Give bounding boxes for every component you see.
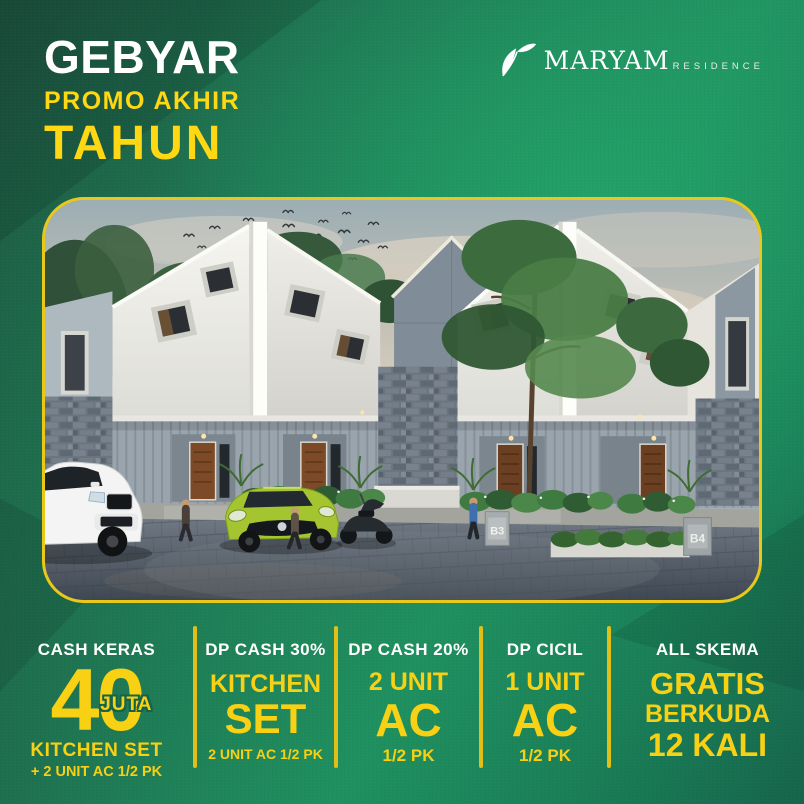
offer-bonus-line: BERKUDA xyxy=(645,701,770,729)
offer-dp-cash-20: DP CASH 20% 2 UNIT AC 1/2 PK xyxy=(338,622,479,786)
unit-sign-b4: B4 xyxy=(684,518,712,556)
offer-scheme-label: DP CICIL xyxy=(507,640,583,660)
leaf-icon xyxy=(497,40,537,80)
promo-offers-strip: CASH KERAS 40 JUTA KITCHEN SET + 2 UNIT … xyxy=(0,622,804,786)
offer-scheme-label: DP CASH 30% xyxy=(205,640,325,660)
offer-dp-cash-30: DP CASH 30% KITCHEN SET 2 UNIT AC 1/2 PK xyxy=(197,622,334,786)
offer-cash-keras: CASH KERAS 40 JUTA KITCHEN SET + 2 UNIT … xyxy=(0,622,193,786)
brand-logo: MARYAM RESIDENCE xyxy=(497,40,764,80)
offer-scheme-label: DP CASH 20% xyxy=(348,640,468,660)
offer-bonus-line: 1/2 PK xyxy=(383,746,435,766)
house-render-photo: B3 B4 xyxy=(42,197,762,603)
offer-all-skema: ALL SKEMA GRATIS BERKUDA 12 KALI xyxy=(611,622,804,786)
unit-sign-b4-label: B4 xyxy=(690,531,706,545)
offer-bonus-line: 12 KALI xyxy=(648,728,767,763)
offer-bonus-line: AC xyxy=(512,697,578,743)
brand-type: RESIDENCE xyxy=(673,61,764,72)
offer-bonus-line: AC xyxy=(375,697,441,743)
offer-bonus-line: SET xyxy=(225,699,307,739)
offer-bonus-line: 2 UNIT AC 1/2 PK xyxy=(208,746,323,762)
green-hatchback-car xyxy=(220,488,343,555)
headline-line-2: PROMO AKHIR xyxy=(44,89,240,114)
offer-bonus-line: 1/2 PK xyxy=(519,746,571,766)
unit-sign-b3: B3 xyxy=(485,512,509,546)
offer-bonus-line: GRATIS xyxy=(650,668,765,701)
brand-name: MARYAM xyxy=(544,46,670,75)
headline: GEBYAR PROMO AKHIR TAHUN xyxy=(44,34,240,168)
offer-bonus-line: 2 UNIT xyxy=(369,668,448,697)
promo-poster: GEBYAR PROMO AKHIR TAHUN MARYAM RESIDENC… xyxy=(0,0,804,804)
headline-line-3: TAHUN xyxy=(44,120,240,168)
offer-scheme-label: ALL SKEMA xyxy=(656,640,759,660)
house-scene: B3 B4 xyxy=(45,200,759,600)
unit-sign-b3-label: B3 xyxy=(490,525,504,537)
offer-discount-unit: JUTA xyxy=(100,694,152,716)
headline-line-1: GEBYAR xyxy=(44,34,240,80)
offer-bonus-line: 1 UNIT xyxy=(505,668,584,697)
offer-dp-cicil: DP CICIL 1 UNIT AC 1/2 PK xyxy=(483,622,607,786)
offer-bonus-line: + 2 UNIT AC 1/2 PK xyxy=(31,764,162,780)
